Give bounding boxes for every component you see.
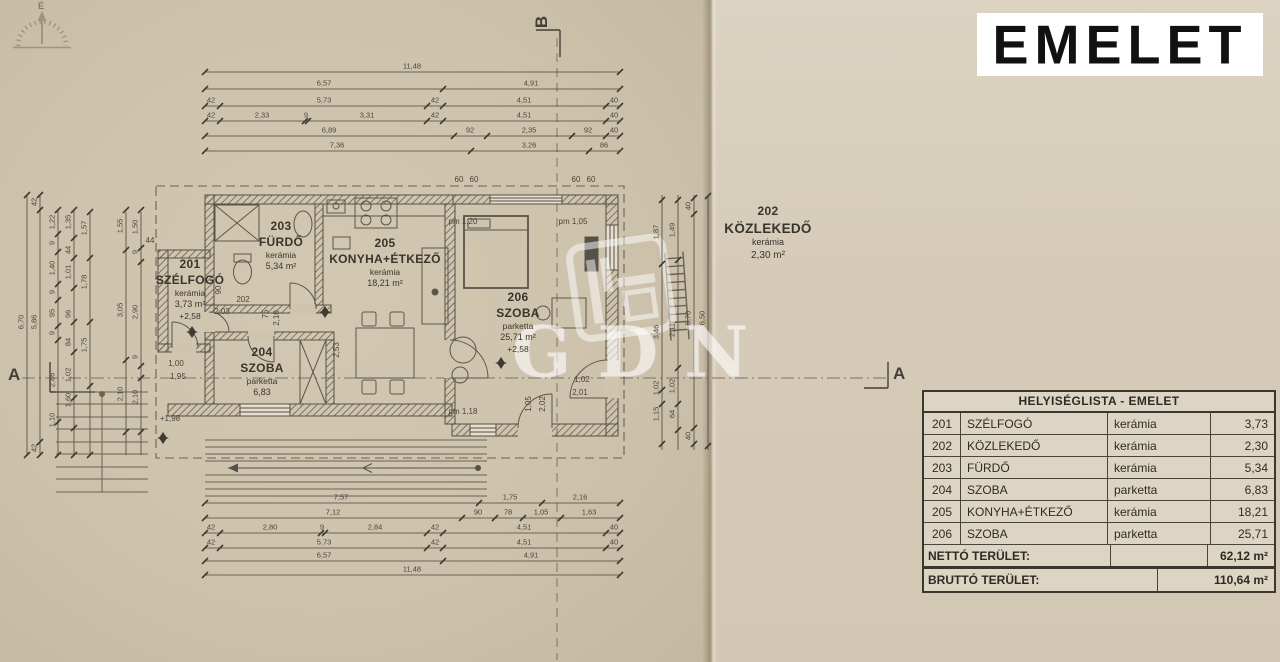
window-206-top (490, 195, 562, 204)
section-marker-a-left: A (8, 365, 20, 385)
table-row: 205 KONYHA+ÉTKEZŐ kerámia 18,21 (924, 501, 1274, 523)
title-block: EMELET (977, 13, 1263, 76)
table-row: 204 SZOBA parketta 6,83 (924, 479, 1274, 501)
table-brutto-row: BRUTTÓ TERÜLET: 110,64 m² (924, 566, 1274, 591)
toilet (234, 254, 252, 284)
room-label-205: 205 KONYHA+ÉTKEZŐ kerámia 18,21 m² (329, 236, 441, 290)
scanned-floor-plan: GDN É B A A EMELET 201 SZÉLFOGÓ kerámia … (0, 0, 1280, 662)
page-title: EMELET (992, 13, 1247, 76)
shower (215, 205, 259, 241)
wardrobe (300, 340, 326, 404)
room-label-204: 204 SZOBA parketta 6,83 (240, 345, 284, 399)
table-row: 201 SZÉLFOGÓ kerámia 3,73 (924, 413, 1274, 435)
dining-table (356, 312, 414, 394)
watermark-text: GDN (512, 311, 774, 394)
bed (464, 216, 528, 288)
table-row: 202 KÖZLEKEDŐ kerámia 2,30 (924, 435, 1274, 457)
table-netto-row: NETTÓ TERÜLET: 62,12 m² (924, 545, 1274, 566)
table-row: 203 FÜRDŐ kerámia 5,34 (924, 457, 1274, 479)
compass-icon (13, 11, 71, 48)
stairs-terrace (205, 440, 487, 496)
room-label-203: 203 FÜRDŐ kerámia 5,34 m² (259, 219, 303, 273)
window-204-bottom (240, 404, 290, 416)
room-label-201: 201 SZÉLFOGÓ kerámia 3,73 m² +2,58 (156, 257, 224, 322)
window-206-bottom (470, 424, 496, 436)
table-title: HELYISÉGLISTA - EMELET (924, 392, 1274, 413)
section-marker-a-right: A (893, 364, 905, 384)
room-label-202: 202 KÖZLEKEDŐ kerámia 2,30 m² (724, 204, 811, 262)
room-list-table: HELYISÉGLISTA - EMELET 201 SZÉLFOGÓ kerá… (922, 390, 1276, 593)
room-label-206: 206 SZOBA parketta 25,71 m² +2,58 (496, 290, 540, 355)
section-marker-b-top: B (532, 16, 552, 28)
stairs-left (56, 391, 148, 492)
compass-north-label: É (38, 1, 44, 11)
table-row: 206 SZOBA parketta 25,71 (924, 523, 1274, 545)
